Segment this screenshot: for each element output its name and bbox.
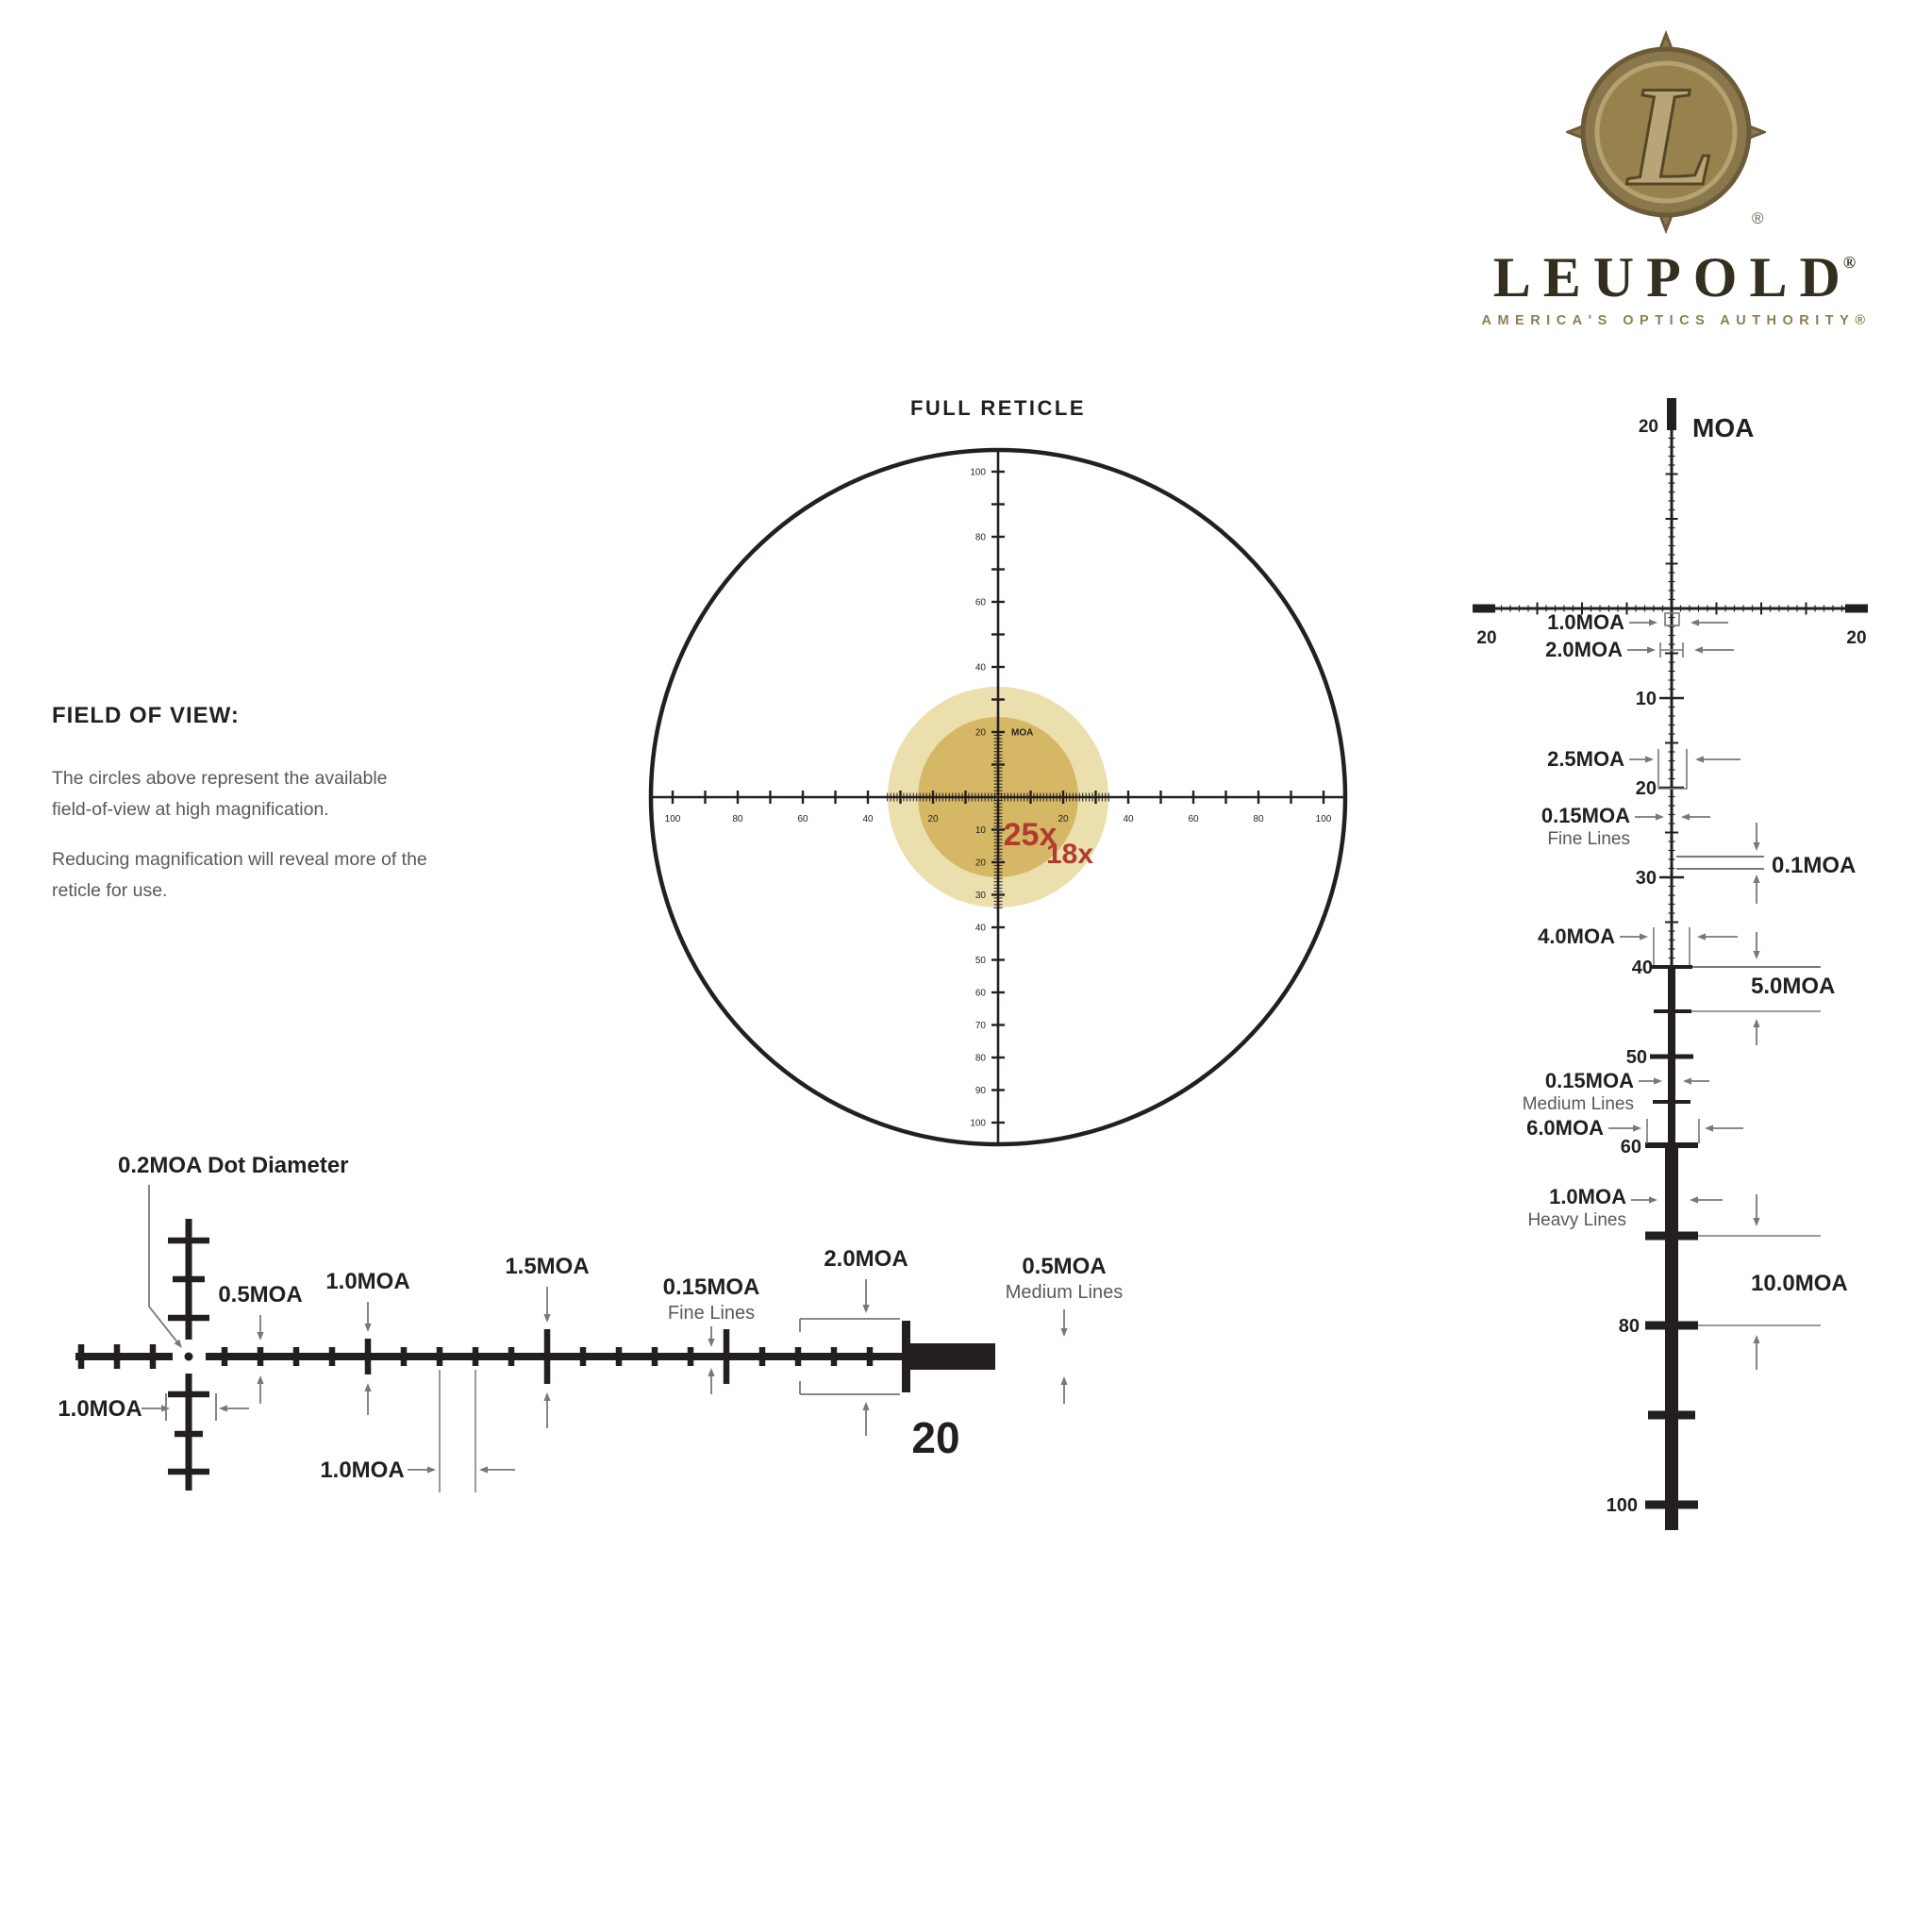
v-axis-tick-label: 40 [975, 663, 987, 674]
v-axis-tick-label: 30 [975, 891, 987, 901]
scale-label: 50 [1626, 1047, 1647, 1068]
h-axis-tick-label: 20 [1058, 814, 1069, 824]
post-height-label: 2.0MOA [824, 1246, 908, 1272]
small-tick-label: 0.5MOA [218, 1282, 302, 1307]
field-of-view-title: FIELD OF VIEW: [52, 703, 524, 729]
full-reticle-title: FULL RETICLE [830, 396, 1166, 421]
v-axis-tick-label: 80 [975, 533, 987, 543]
horizontal-reticle-detail: 0.2MOA Dot Diameter0.5MOA1.0MOA1.5MOA0.1… [58, 1153, 1123, 1492]
field-of-view-block: FIELD OF VIEW: The circles above represe… [52, 703, 524, 907]
v-axis-tick-label: 80 [975, 1054, 987, 1064]
h-axis-tick-label: 80 [1253, 814, 1264, 824]
ann-4moa: 4.0MOA [1538, 924, 1615, 948]
axis-end-label: 20 [1846, 628, 1866, 648]
v-axis-tick-label: 90 [975, 1086, 987, 1096]
ann-1moa: 1.0MOA [1547, 610, 1624, 634]
brand-wordmark: LEUPOLD® [1451, 245, 1898, 310]
h-axis-tick-label: 100 [1316, 814, 1332, 824]
v-axis-tick-label: 20 [975, 858, 987, 869]
center-dot [185, 1353, 193, 1361]
medallion-registered-mark: ® [1752, 209, 1764, 228]
full-reticle-diagram: 2020404060608080100100102030405060708090… [651, 450, 1345, 1144]
brand-text: LEUPOLD [1493, 246, 1853, 308]
vertical-reticle-detail: 202020MOA102030405060801001.0MOA2.0MOA2.… [1473, 398, 1868, 1530]
scale-label: 80 [1619, 1316, 1640, 1337]
v-axis-tick-label: 40 [975, 924, 987, 934]
ann-heavy-sub: Heavy Lines [1527, 1210, 1626, 1230]
axis-end-label: 20 [1476, 628, 1496, 648]
ann-10moa: 10.0MOA [1751, 1271, 1848, 1296]
h-axis-tick-label: 40 [1123, 814, 1134, 824]
moa-unit-label: MOA [1692, 413, 1754, 442]
top-post [1667, 398, 1676, 430]
ann-medium: 0.15MOA [1545, 1069, 1634, 1092]
field-of-view-text: The circles above represent the availabl… [52, 763, 524, 794]
v-axis-tick-label: 100 [970, 468, 986, 478]
field-of-view-text: field-of-view at high magnification. [52, 794, 524, 825]
scale-label: 20 [1639, 417, 1658, 437]
v-axis-tick-label: 60 [975, 989, 987, 999]
v-axis-tick-label: 100 [970, 1119, 986, 1129]
center-gap-label: 1.0MOA [58, 1396, 142, 1422]
post-position-label: 20 [911, 1413, 959, 1462]
ann-fine-sub: Fine Lines [1547, 829, 1630, 849]
v-axis-tick-label: 60 [975, 598, 987, 608]
ann-6moa: 6.0MOA [1526, 1116, 1604, 1140]
scale-label: 20 [1636, 778, 1657, 799]
scale-label: 60 [1621, 1137, 1641, 1158]
dot-diameter-label: 0.2MOA Dot Diameter [118, 1153, 349, 1178]
scale-label: 100 [1607, 1495, 1638, 1516]
post-20moa [902, 1321, 910, 1392]
ann-2moa: 2.0MOA [1545, 638, 1623, 661]
ann-0-1moa: 0.1MOA [1772, 853, 1856, 878]
heavy-bar [910, 1343, 995, 1370]
medium-line-label: 0.5MOA [1022, 1254, 1106, 1279]
ann-fine: 0.15MOA [1541, 804, 1630, 827]
magnification-18x-label: 18x [1046, 839, 1093, 870]
h-axis-tick-label: 60 [797, 814, 808, 824]
fine-line-label: 0.15MOA [663, 1274, 760, 1300]
field-of-view-text: reticle for use. [52, 875, 524, 907]
h-axis-tick-label: 60 [1188, 814, 1199, 824]
scale-label: 40 [1632, 958, 1653, 978]
leupold-medallion-logo: L [1566, 30, 1766, 234]
brand-registered-mark: ® [1843, 253, 1856, 272]
scale-label: 30 [1636, 868, 1657, 889]
tick-spacing-label: 1.0MOA [320, 1457, 404, 1483]
h-axis-tick-label: 40 [862, 814, 874, 824]
h-axis-tick-label: 20 [927, 814, 939, 824]
field-of-view-text: Reducing magnification will reveal more … [52, 844, 524, 875]
brand-tagline: AMERICA'S OPTICS AUTHORITY® [1453, 313, 1900, 328]
v-axis-tick-label: 70 [975, 1021, 987, 1031]
ann-5moa: 5.0MOA [1751, 974, 1835, 999]
page-canvas: 2020404060608080100100102030405060708090… [0, 0, 1932, 1932]
ann-medium-sub: Medium Lines [1523, 1094, 1634, 1114]
scale-label: 10 [1636, 689, 1657, 709]
leupold-monogram: L [1626, 57, 1716, 215]
medium-line-sublabel: Medium Lines [1006, 1282, 1124, 1303]
v-axis-tick-label: 50 [975, 956, 987, 966]
tall-tick-label: 1.5MOA [505, 1254, 589, 1279]
v-axis-tick-label: 20 [975, 728, 987, 739]
ann-2-5moa: 2.5MOA [1547, 747, 1624, 771]
moa-unit-label: MOA [1011, 728, 1033, 739]
h-axis-tick-label: 100 [665, 814, 681, 824]
v-axis-tick-label: 10 [975, 825, 987, 836]
fine-line-sublabel: Fine Lines [668, 1303, 755, 1324]
medium-tick-label: 1.0MOA [325, 1269, 409, 1294]
h-axis-tick-label: 80 [732, 814, 743, 824]
ann-heavy: 1.0MOA [1549, 1185, 1626, 1208]
